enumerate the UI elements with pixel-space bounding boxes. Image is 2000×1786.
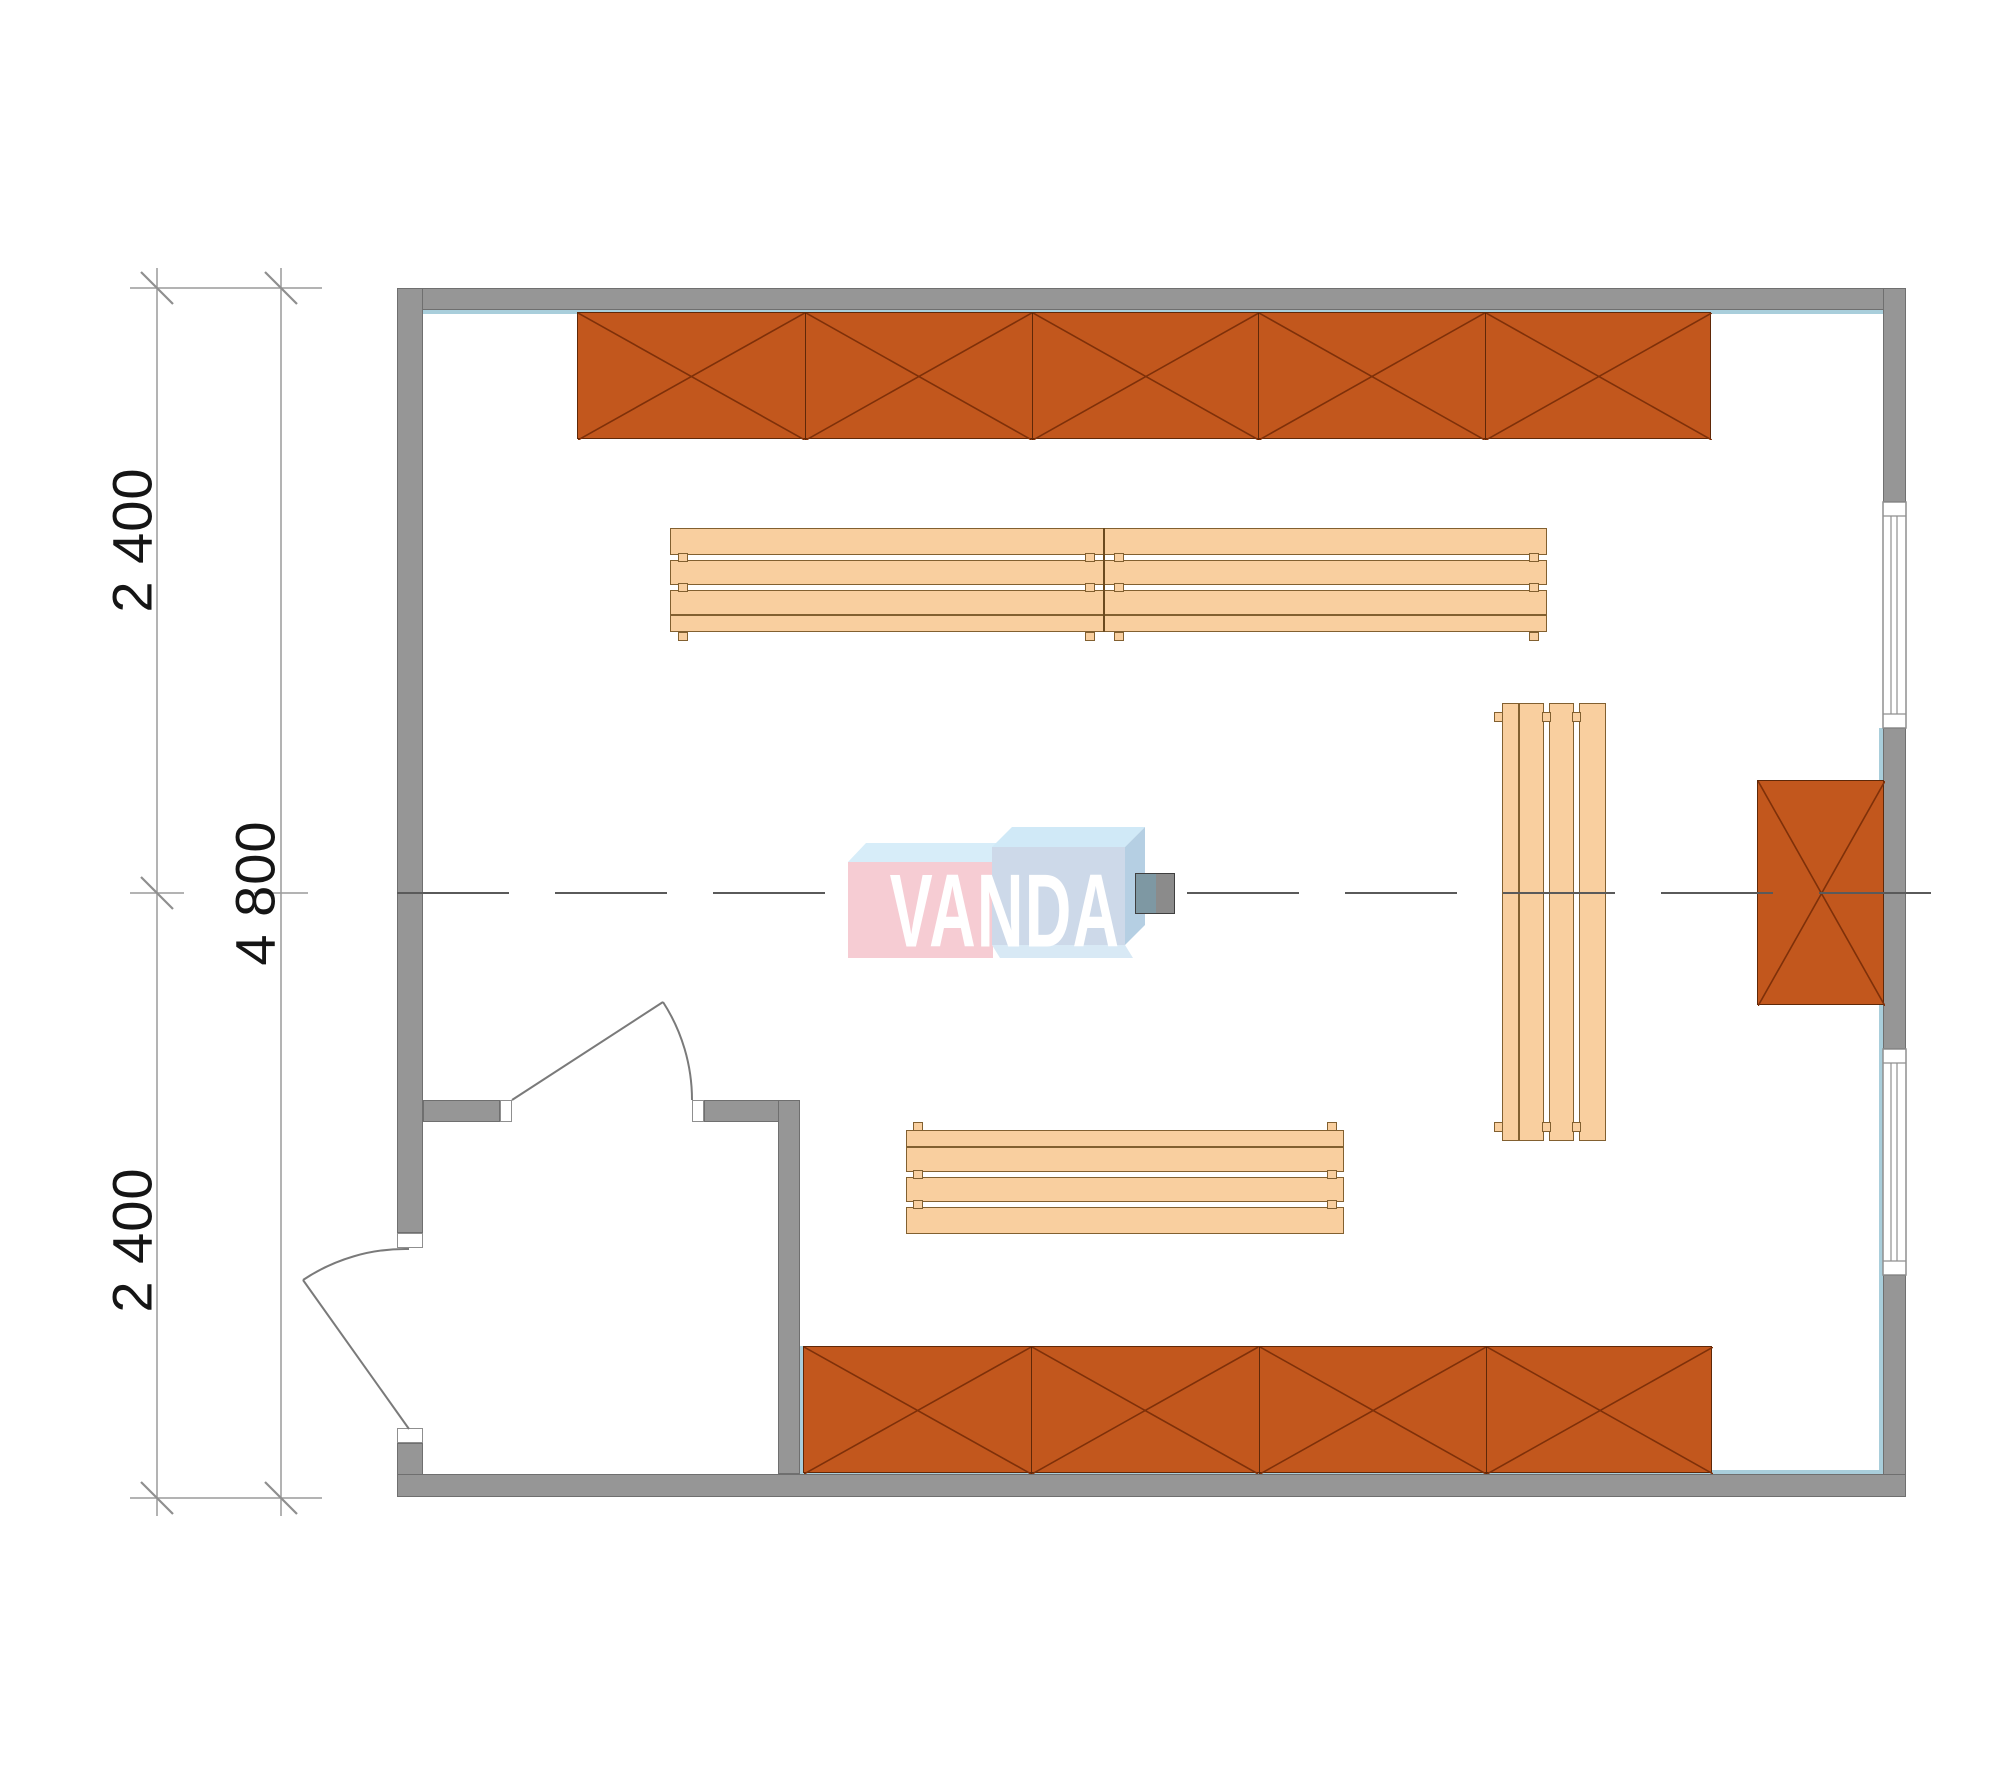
floor-plan: 2 400 4 800 2 400 (0, 0, 2000, 1786)
equipment-box (1135, 873, 1175, 914)
vanda-watermark-text: VANDA (890, 853, 1121, 972)
